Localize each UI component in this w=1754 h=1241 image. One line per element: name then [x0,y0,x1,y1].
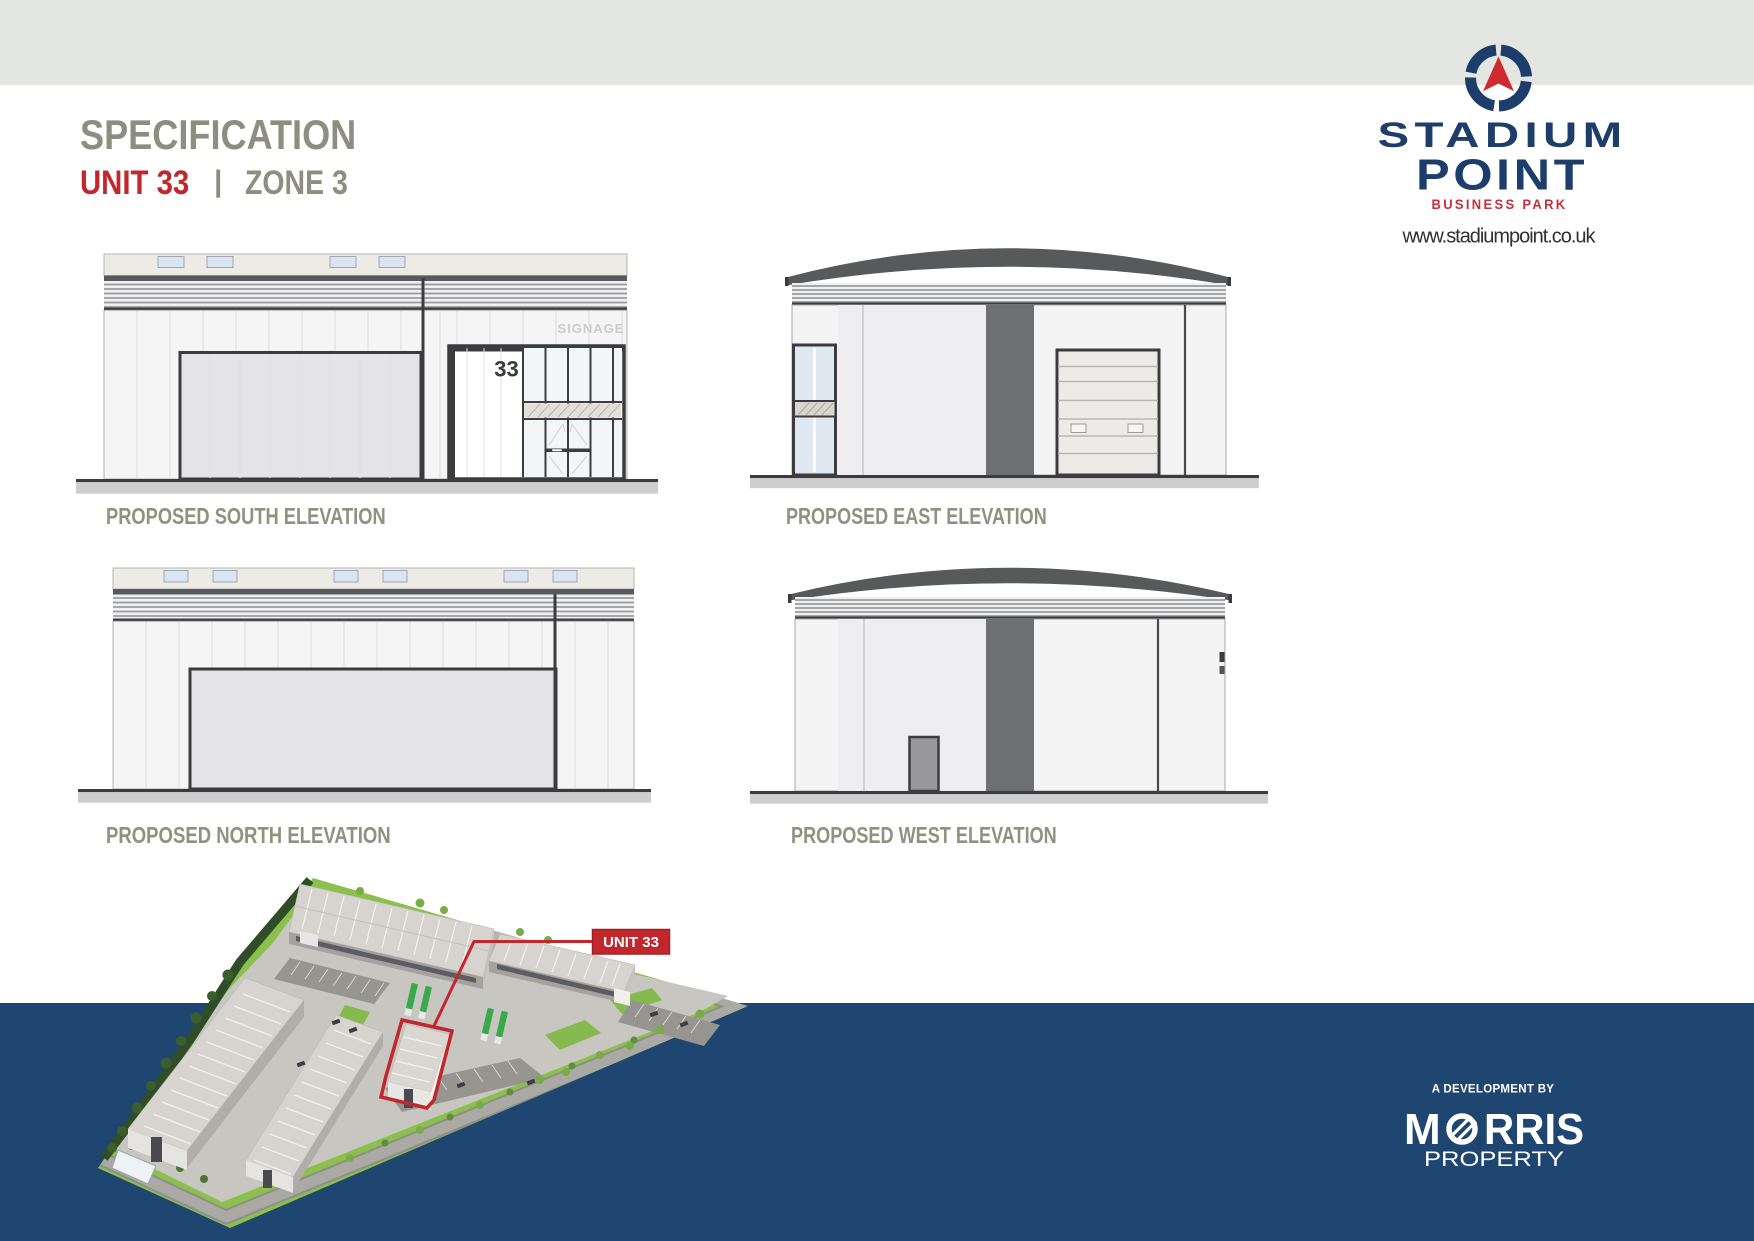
svg-text:SIGNAGE: SIGNAGE [558,321,625,336]
svg-text:RRIS: RRIS [1484,1105,1584,1154]
svg-text:www.stadiumpoint.co.uk: www.stadiumpoint.co.uk [1402,226,1597,248]
svg-text:STADIUM: STADIUM [1378,115,1628,155]
svg-text:BUSINESS PARK: BUSINESS PARK [1432,196,1568,212]
svg-text:PROPERTY: PROPERTY [1424,1148,1564,1171]
svg-text:33: 33 [494,357,518,382]
svg-text:A DEVELOPMENT BY: A DEVELOPMENT BY [1432,1084,1555,1096]
svg-text:POINT: POINT [1416,152,1588,200]
svg-text:M: M [1404,1105,1441,1154]
svg-text:UNIT 33: UNIT 33 [603,934,659,951]
